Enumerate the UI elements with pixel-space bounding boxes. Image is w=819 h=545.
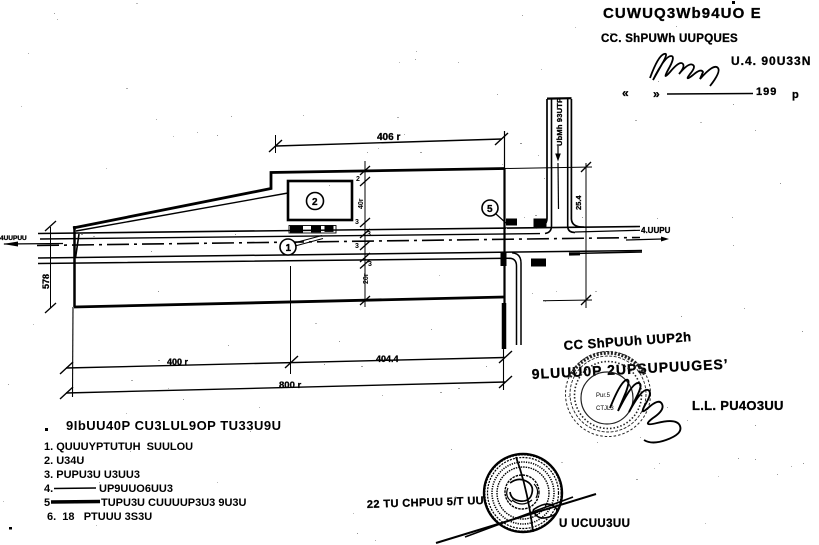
svg-text:5: 5 bbox=[44, 497, 50, 509]
svg-text:»: » bbox=[653, 87, 660, 101]
svg-text:KM: KM bbox=[534, 261, 543, 267]
svg-text:3: 3 bbox=[367, 231, 371, 238]
svg-text:L.L. PU4O3UU: L.L. PU4O3UU bbox=[692, 398, 784, 413]
svg-text:3: 3 bbox=[355, 219, 359, 226]
svg-text:800 r: 800 r bbox=[279, 380, 301, 391]
svg-text:4.UUPU: 4.UUPU bbox=[641, 226, 671, 235]
svg-text:3: 3 bbox=[355, 243, 359, 250]
svg-text:9IbUU40P CU3LUL9OP TU33U9U: 9IbUU40P CU3LUL9OP TU33U9U bbox=[66, 418, 282, 433]
svg-text:TUPU3U CUUUUP3U3 9U3U: TUPU3U CUUUUP3U3 9U3U bbox=[101, 497, 247, 509]
svg-text:1. QUUUYPTUTUH SUULOU: 1. QUUUYPTUTUH SUULOU bbox=[44, 441, 193, 453]
svg-text:p: p bbox=[792, 89, 799, 101]
svg-text:4UUPUU: 4UUPUU bbox=[0, 235, 27, 242]
svg-text:Pur.5: Pur.5 bbox=[596, 393, 611, 399]
svg-text:578: 578 bbox=[41, 274, 51, 289]
svg-text:404.4: 404.4 bbox=[376, 354, 399, 364]
svg-text:KM: KM bbox=[535, 222, 544, 228]
svg-text:5: 5 bbox=[487, 204, 493, 215]
svg-text:3: 3 bbox=[368, 261, 372, 268]
svg-text:U UCUU3UU: U UCUU3UU bbox=[559, 518, 630, 530]
svg-text:«: « bbox=[622, 86, 629, 100]
svg-text:2: 2 bbox=[356, 176, 360, 183]
svg-text:CTJL3: CTJL3 bbox=[596, 406, 614, 412]
svg-text:40r: 40r bbox=[358, 198, 365, 209]
svg-text:CUWUQ3Wb94UO E: CUWUQ3Wb94UO E bbox=[603, 5, 762, 22]
svg-text:199: 199 bbox=[756, 86, 777, 98]
svg-text:3. PUPU3U U3UU3: 3. PUPU3U U3UU3 bbox=[44, 469, 140, 481]
svg-text:20r: 20r bbox=[363, 273, 370, 284]
svg-text:U.4. 90U33N: U.4. 90U33N bbox=[731, 54, 811, 68]
svg-text:406 r: 406 r bbox=[377, 132, 400, 143]
svg-text:6. 18 PTUUU 3S3U: 6. 18 PTUUU 3S3U bbox=[47, 511, 152, 523]
svg-text:400 r: 400 r bbox=[167, 357, 189, 367]
svg-text:25.4: 25.4 bbox=[574, 195, 583, 210]
svg-text:4.: 4. bbox=[44, 483, 53, 495]
svg-text:1: 1 bbox=[286, 243, 292, 254]
svg-text:CC. ShPUWh UUPQUES: CC. ShPUWh UUPQUES bbox=[601, 33, 738, 45]
svg-text:2: 2 bbox=[312, 197, 318, 208]
svg-text:UP9UUO6UU3: UP9UUO6UU3 bbox=[99, 483, 173, 495]
svg-text:UbMh 93UTP: UbMh 93UTP bbox=[555, 98, 564, 146]
svg-text:2. U34U: 2. U34U bbox=[44, 455, 84, 467]
